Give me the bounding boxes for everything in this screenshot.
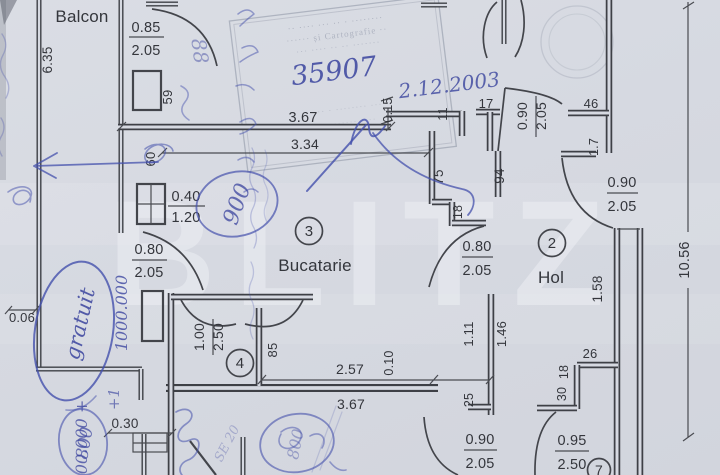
dim-6-35: 6.35 <box>40 46 55 73</box>
room-number-3: 3 <box>305 223 314 240</box>
dim-46: 46 <box>584 96 599 111</box>
pen-plus-1: +1 <box>105 388 123 410</box>
dim-1-11: 1.11 <box>461 321 476 346</box>
floorplan-drawing: BLITZ ·· ···· ··· ·· · ········ ······ ș… <box>0 0 720 475</box>
dim-59: 59 <box>160 90 175 105</box>
door-size: 0.90 <box>514 102 530 130</box>
room-number-2: 2 <box>548 235 557 252</box>
door-size: 0.80 <box>462 239 491 255</box>
dim-0-30: 0.30 <box>111 416 138 431</box>
dim-1-7: 1.7 <box>587 138 601 156</box>
door-size: 2.05 <box>607 199 636 215</box>
dim-1-46: 1.46 <box>494 321 509 347</box>
dim-3-67-top: 3.67 <box>288 110 317 126</box>
dim-0-10: 0.10 <box>382 350 396 375</box>
door-arc-entry <box>505 88 562 104</box>
door-arc-bottom <box>424 417 458 475</box>
door-size: 0.90 <box>465 432 494 448</box>
door-size: 2.05 <box>533 102 549 130</box>
room-label-balcony: Balcon <box>55 7 108 26</box>
dim-17: 17 <box>479 96 494 111</box>
door-size: 1.00 <box>191 323 207 351</box>
pen-text-800-left: 800 <box>72 425 97 461</box>
dim-25: 25 <box>462 393 476 407</box>
door-size: 2.50 <box>210 323 226 351</box>
scanned-floorplan-photo: BLITZ ·· ···· ··· ·· · ········ ······ ș… <box>0 0 720 475</box>
room-number-7: 7 <box>595 462 603 475</box>
door-size: 2.05 <box>134 265 163 281</box>
pen-faint-diagonal <box>312 406 342 472</box>
door-size: 0.85 <box>131 20 160 36</box>
door-size: 0.95 <box>557 433 586 449</box>
dim-26: 26 <box>583 346 598 361</box>
pen-squiggle <box>181 86 189 120</box>
door-size: 2.05 <box>465 456 494 472</box>
room-label-kitchen: Bucatarie <box>278 256 352 275</box>
pen-amount-1000000: 1000.000 <box>112 275 131 351</box>
wall-pier <box>133 71 161 110</box>
dim-94: 94 <box>492 168 507 184</box>
pen-text-800-right: 800 <box>283 427 308 461</box>
room-label-hall: Hol <box>538 268 564 287</box>
dim-3-34: 3.34 <box>291 136 319 152</box>
door-size: 2.05 <box>131 43 160 59</box>
round-stamp <box>541 6 613 78</box>
dim-0-06: 0.06 <box>9 310 35 325</box>
door-size: 0.80 <box>134 242 163 258</box>
pen-faint-se20: SE 20 <box>212 423 244 465</box>
dim-1-58: 1.58 <box>590 275 605 302</box>
door-leaf-entry <box>498 88 505 151</box>
pen-doodle-88: 88 <box>186 37 213 66</box>
door-size: 2.05 <box>462 263 491 279</box>
stamp-number-handwritten: 35907 <box>289 51 379 92</box>
pen-loops-mid <box>176 409 199 475</box>
dim-0-15: 0.15 <box>381 97 395 122</box>
dim-line-2-57 <box>258 375 494 384</box>
dim-30: 30 <box>555 387 569 401</box>
door-arc-bottom-right <box>535 412 556 475</box>
dim-18: 18 <box>451 205 465 219</box>
door-size: 2.50 <box>557 457 586 473</box>
dim-85: 85 <box>265 343 280 358</box>
dim-2-57: 2.57 <box>336 361 364 377</box>
dim-18b: 18 <box>557 365 571 379</box>
round-stamp-outer <box>541 6 613 78</box>
room-number-4: 4 <box>236 355 245 372</box>
dim-10-56: 10.56 <box>677 241 693 278</box>
dim-3-67-bottom: 3.67 <box>337 396 365 412</box>
round-stamp-inner <box>549 14 605 70</box>
dim-11: 11 <box>436 107 450 120</box>
door-size: 0.90 <box>607 175 636 191</box>
